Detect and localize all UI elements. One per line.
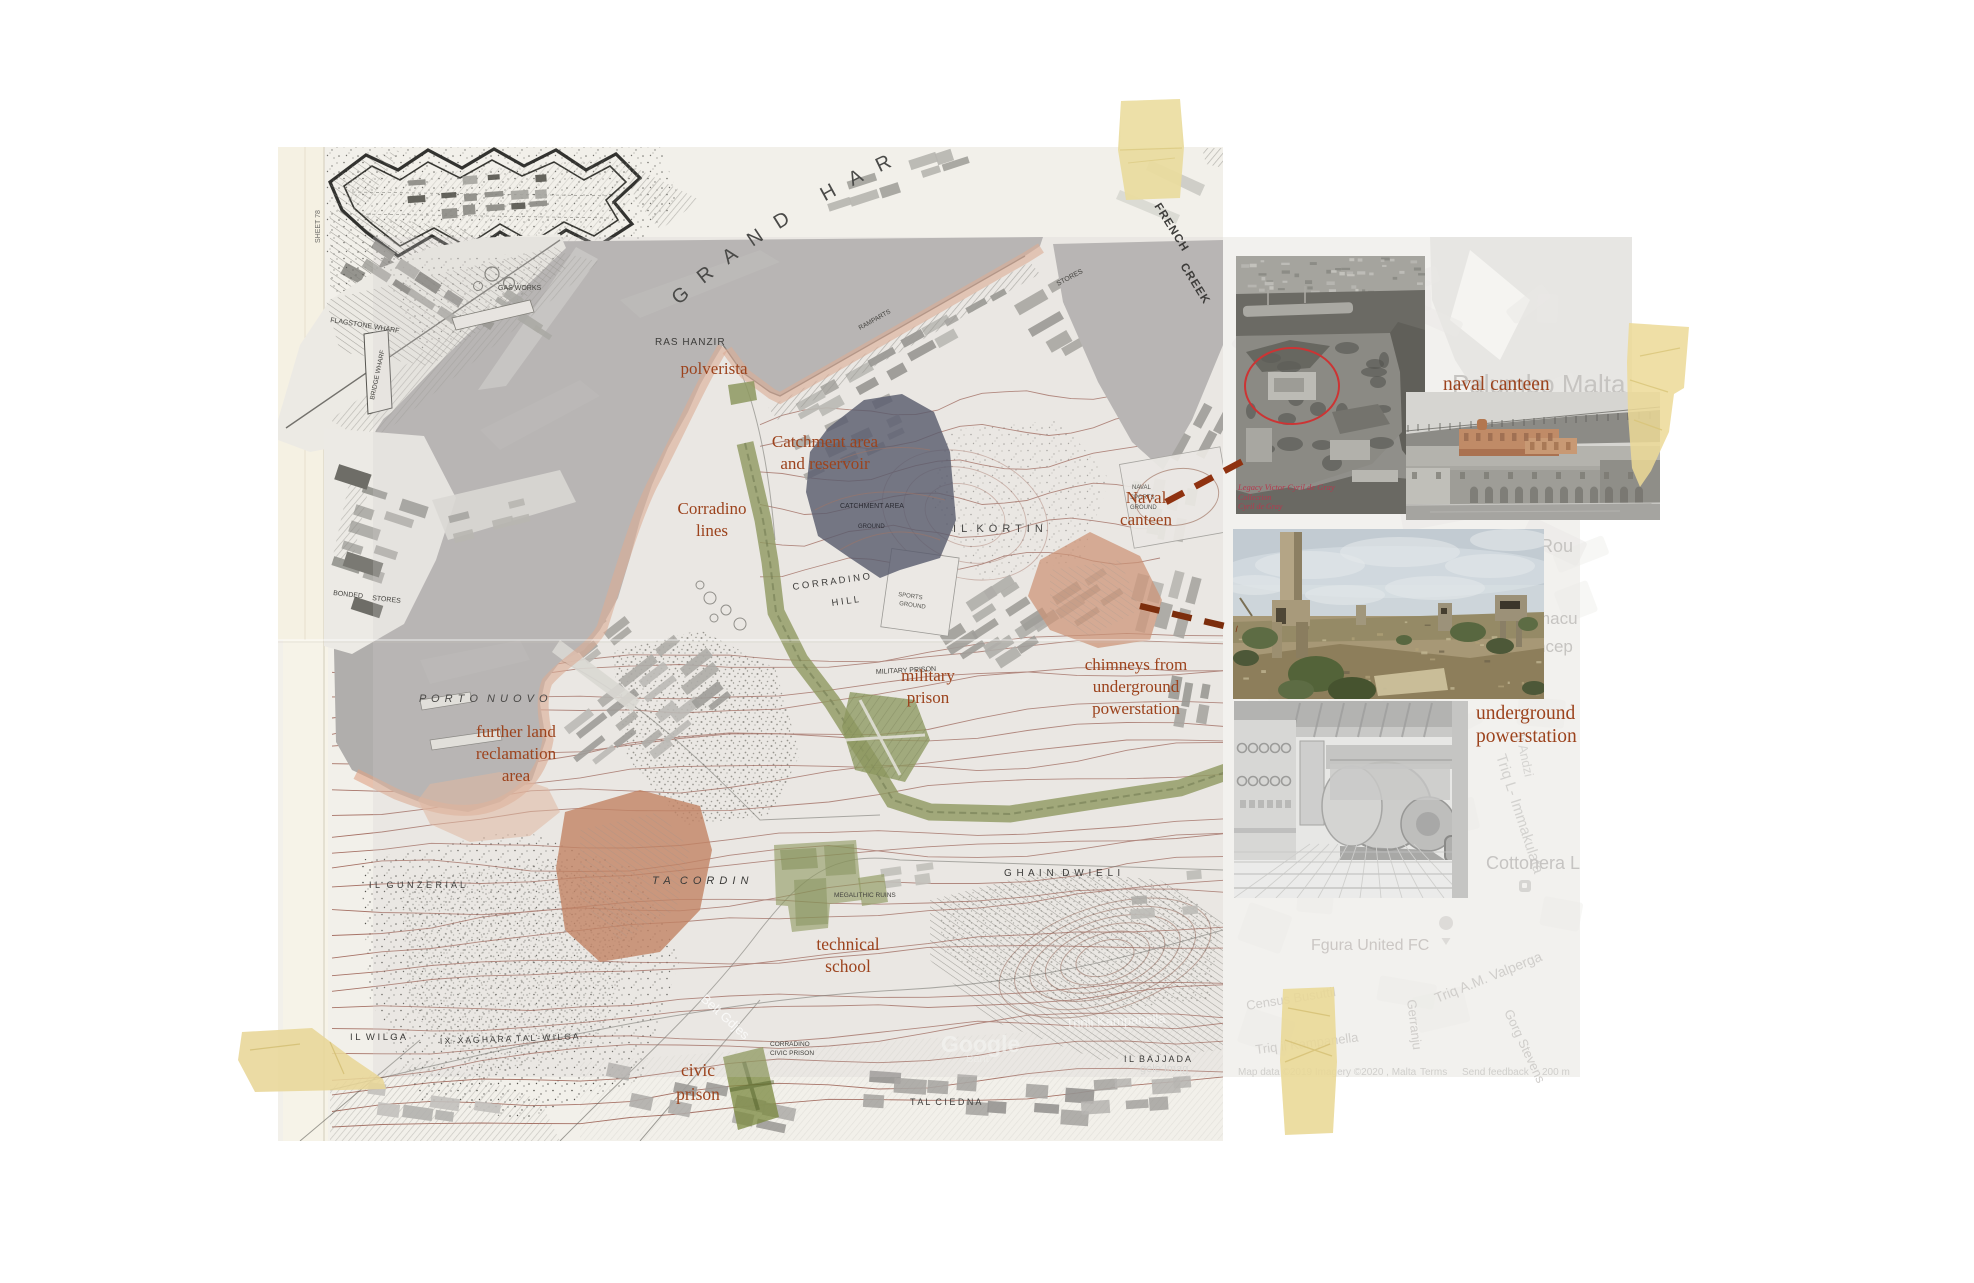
svg-text:200 m: 200 m [1542,1067,1570,1078]
svg-text:Corradino: Corradino [678,499,747,518]
svg-text:chimneys from: chimneys from [1085,655,1187,674]
svg-text:civic: civic [681,1060,715,1080]
svg-text:military: military [901,666,955,685]
svg-text:CIVIC PRISON: CIVIC PRISON [770,1050,814,1057]
svg-text:prison: prison [907,688,950,707]
svg-text:SHEET 78: SHEET 78 [315,210,322,243]
svg-text:canteen: canteen [1120,510,1172,529]
svg-text:CORRADINO: CORRADINO [770,1041,810,1048]
svg-text:RAS HANZIR: RAS HANZIR [655,337,726,348]
svg-text:Cyril de Gray: Cyril de Gray [1238,502,1283,511]
svg-text:polverista: polverista [680,359,747,378]
svg-text:gele Imag: gele Imag [1140,1063,1188,1075]
svg-text:GAS WORKS: GAS WORKS [498,285,542,292]
svg-text:area: area [502,766,531,785]
svg-text:Sant: Sant [966,1053,989,1065]
svg-text:I L K O R T I N: I L K O R T I N [953,523,1044,535]
svg-text:naval canteen: naval canteen [1443,374,1550,395]
svg-text:Naval: Naval [1126,488,1167,507]
svg-text:prison: prison [676,1084,720,1104]
svg-text:Rou: Rou [1540,536,1573,556]
svg-text:Send feedback: Send feedback [1462,1067,1530,1078]
svg-text:MEGALITHIC RUINS: MEGALITHIC RUINS [834,892,896,899]
svg-text:lines: lines [696,521,728,540]
svg-text:powerstation: powerstation [1092,699,1180,718]
svg-text:I L W I L G A: I L W I L G A [350,1032,407,1043]
svg-text:school: school [825,956,871,976]
svg-text:GROUND: GROUND [858,524,885,530]
svg-text:technical: technical [816,934,879,954]
svg-text:Cottonera L: Cottonera L [1486,853,1580,873]
svg-text:I L G U N Z E R I A L: I L G U N Z E R I A L [369,880,466,890]
svg-text:CATCHMENT AREA: CATCHMENT AREA [840,503,904,510]
svg-text:Catchment area: Catchment area [772,432,879,451]
svg-text:Fgura United FC: Fgura United FC [1311,937,1429,954]
svg-text:Terms: Terms [1420,1067,1447,1078]
svg-text:further land: further land [476,722,556,741]
svg-text:Legacy Victor Cyril de Gray: Legacy Victor Cyril de Gray [1237,482,1335,492]
svg-text:T A L C I E D N A: T A L C I E D N A [910,1097,981,1107]
svg-text:T A C O R D I N: T A C O R D I N [652,875,750,887]
svg-text:powerstation: powerstation [1476,726,1577,747]
svg-text:P O R T O N U O V O: P O R T O N U O V O [419,693,549,705]
svg-text:and reservoir: and reservoir [780,454,870,473]
svg-text:Collection: Collection [1238,493,1271,502]
svg-text:underground: underground [1476,703,1576,724]
svg-text:G H A I N D W I E L I: G H A I N D W I E L I [1004,868,1121,879]
svg-text:underground: underground [1093,677,1180,696]
svg-text:reclamation: reclamation [476,744,557,763]
